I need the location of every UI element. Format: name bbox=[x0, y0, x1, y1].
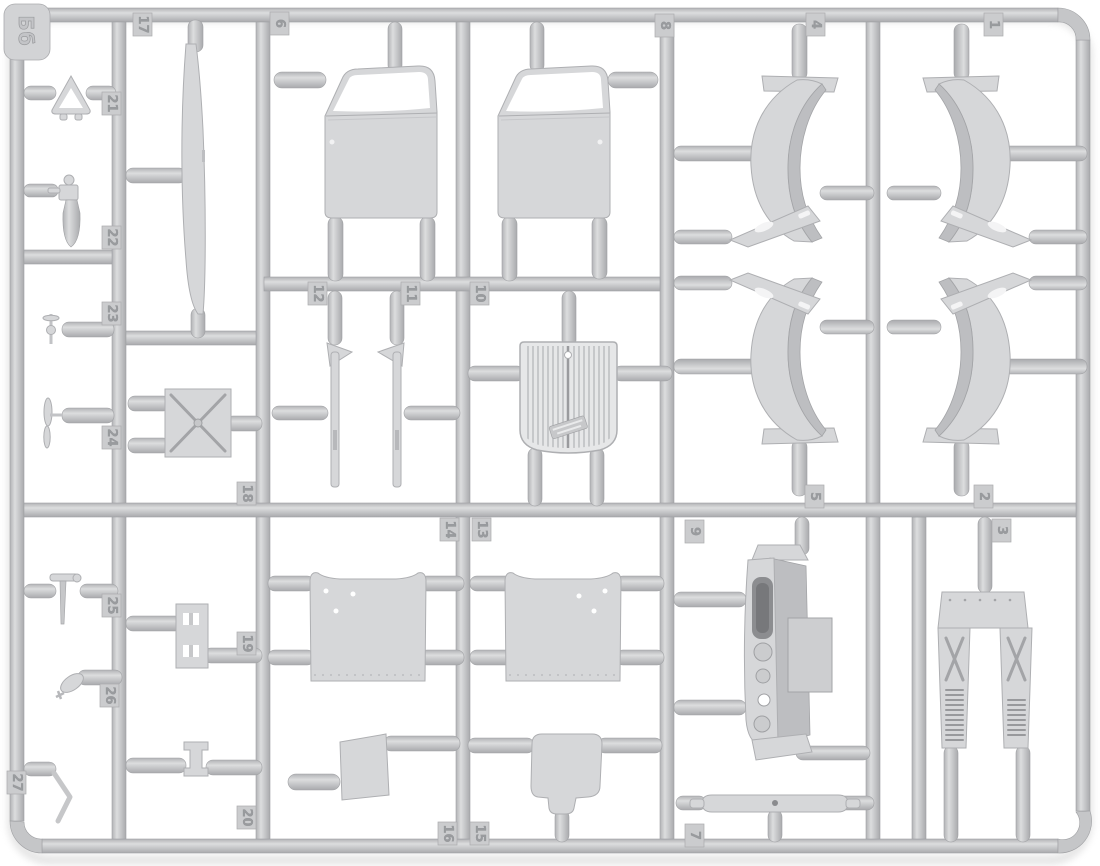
svg-text:19: 19 bbox=[239, 634, 254, 652]
svg-text:7: 7 bbox=[687, 831, 702, 840]
tag-6: 6 bbox=[270, 12, 289, 35]
svg-text:17: 17 bbox=[135, 15, 150, 33]
part-1-front-fender bbox=[887, 24, 1087, 247]
svg-text:12: 12 bbox=[310, 284, 325, 302]
sprue-letter: Бб bbox=[14, 15, 38, 46]
tag-17: 17 bbox=[133, 13, 152, 36]
part-13-cab-panel bbox=[470, 573, 664, 681]
runner-v3 bbox=[456, 22, 470, 839]
sprue-illustration: Бб 1 4 6 8 17 21 22 23 24 25 26 27 12 11… bbox=[0, 0, 1100, 866]
tag-9: 9 bbox=[685, 520, 704, 543]
part-10-radiator-grille bbox=[468, 291, 672, 506]
tag-3: 3 bbox=[992, 519, 1011, 542]
part-6-cab-door bbox=[274, 22, 437, 281]
tag-14: 14 bbox=[440, 518, 459, 541]
part-22-fuel-pump bbox=[24, 175, 80, 247]
svg-text:11: 11 bbox=[403, 284, 418, 302]
runner-left-divider bbox=[24, 250, 112, 264]
tag-4: 4 bbox=[806, 13, 825, 36]
part-8-cab-door bbox=[498, 22, 658, 281]
tag-5: 5 bbox=[805, 485, 824, 508]
svg-text:15: 15 bbox=[472, 824, 487, 842]
svg-text:10: 10 bbox=[472, 284, 487, 302]
svg-text:5: 5 bbox=[807, 492, 822, 501]
runner-center-horizontal bbox=[24, 503, 1076, 517]
svg-text:21: 21 bbox=[104, 94, 119, 112]
svg-text:13: 13 bbox=[474, 520, 489, 538]
svg-text:26: 26 bbox=[102, 686, 117, 704]
tag-15: 15 bbox=[470, 822, 489, 845]
runner-bottom bbox=[42, 839, 1058, 853]
runner-v5 bbox=[866, 22, 880, 839]
part-17-trim-strip bbox=[126, 20, 205, 338]
svg-text:20: 20 bbox=[239, 808, 254, 826]
part-5-rear-fender bbox=[674, 273, 874, 496]
part-18-cross-braced-plate bbox=[128, 389, 262, 457]
tag-18: 18 bbox=[237, 482, 256, 505]
part-7-linkage-bar bbox=[676, 795, 874, 842]
tag-7: 7 bbox=[685, 824, 704, 847]
svg-text:6: 6 bbox=[272, 19, 287, 28]
tag-1: 1 bbox=[984, 13, 1003, 36]
part-20-small-bracket bbox=[126, 742, 262, 776]
runner-left bbox=[10, 40, 24, 821]
tag-8: 8 bbox=[655, 14, 674, 37]
svg-text:16: 16 bbox=[440, 824, 455, 842]
part-12-lever-arm bbox=[272, 291, 352, 487]
tag-10: 10 bbox=[470, 282, 489, 305]
svg-text:1: 1 bbox=[986, 20, 1001, 29]
runner-v4 bbox=[660, 22, 674, 839]
tag-13: 13 bbox=[472, 518, 491, 541]
svg-text:25: 25 bbox=[104, 596, 119, 614]
tag-2: 2 bbox=[974, 485, 993, 508]
part-4-front-fender bbox=[674, 24, 874, 247]
tag-25: 25 bbox=[102, 594, 121, 617]
tag-20: 20 bbox=[237, 806, 256, 829]
svg-text:4: 4 bbox=[808, 20, 823, 29]
tag-23: 23 bbox=[102, 302, 121, 325]
part-3-hood-side-panels bbox=[938, 517, 1032, 842]
part-16-floor-panel bbox=[288, 734, 460, 800]
part-14-cab-panel bbox=[268, 573, 464, 681]
svg-text:18: 18 bbox=[239, 484, 254, 502]
svg-text:24: 24 bbox=[104, 428, 119, 446]
svg-text:2: 2 bbox=[976, 492, 991, 501]
part-2-rear-fender bbox=[887, 273, 1087, 496]
part-11-lever-arm bbox=[378, 291, 460, 487]
tag-27: 27 bbox=[7, 771, 26, 794]
svg-text:22: 22 bbox=[104, 228, 119, 246]
part-15-seat-base bbox=[468, 734, 662, 842]
tag-11: 11 bbox=[401, 282, 420, 305]
svg-text:14: 14 bbox=[442, 520, 457, 538]
svg-text:27: 27 bbox=[9, 773, 24, 791]
tag-21: 21 bbox=[102, 92, 121, 115]
svg-text:23: 23 bbox=[104, 304, 119, 322]
svg-text:3: 3 bbox=[994, 526, 1009, 535]
tag-26: 26 bbox=[100, 684, 119, 707]
tag-24: 24 bbox=[102, 426, 121, 449]
sprue-letter-tab: Бб bbox=[4, 4, 50, 60]
part-27-pedal-lever bbox=[24, 762, 70, 821]
tag-16: 16 bbox=[438, 822, 457, 845]
svg-text:9: 9 bbox=[687, 527, 702, 536]
sprue-photo: Бб 1 4 6 8 17 21 22 23 24 25 26 27 12 11… bbox=[0, 0, 1100, 866]
svg-text:8: 8 bbox=[657, 21, 672, 30]
runner-v6 bbox=[912, 517, 926, 839]
tag-12: 12 bbox=[308, 282, 327, 305]
tag-19: 19 bbox=[237, 632, 256, 655]
part-9-firewall-dashboard bbox=[674, 517, 870, 760]
tag-22: 22 bbox=[102, 226, 121, 249]
